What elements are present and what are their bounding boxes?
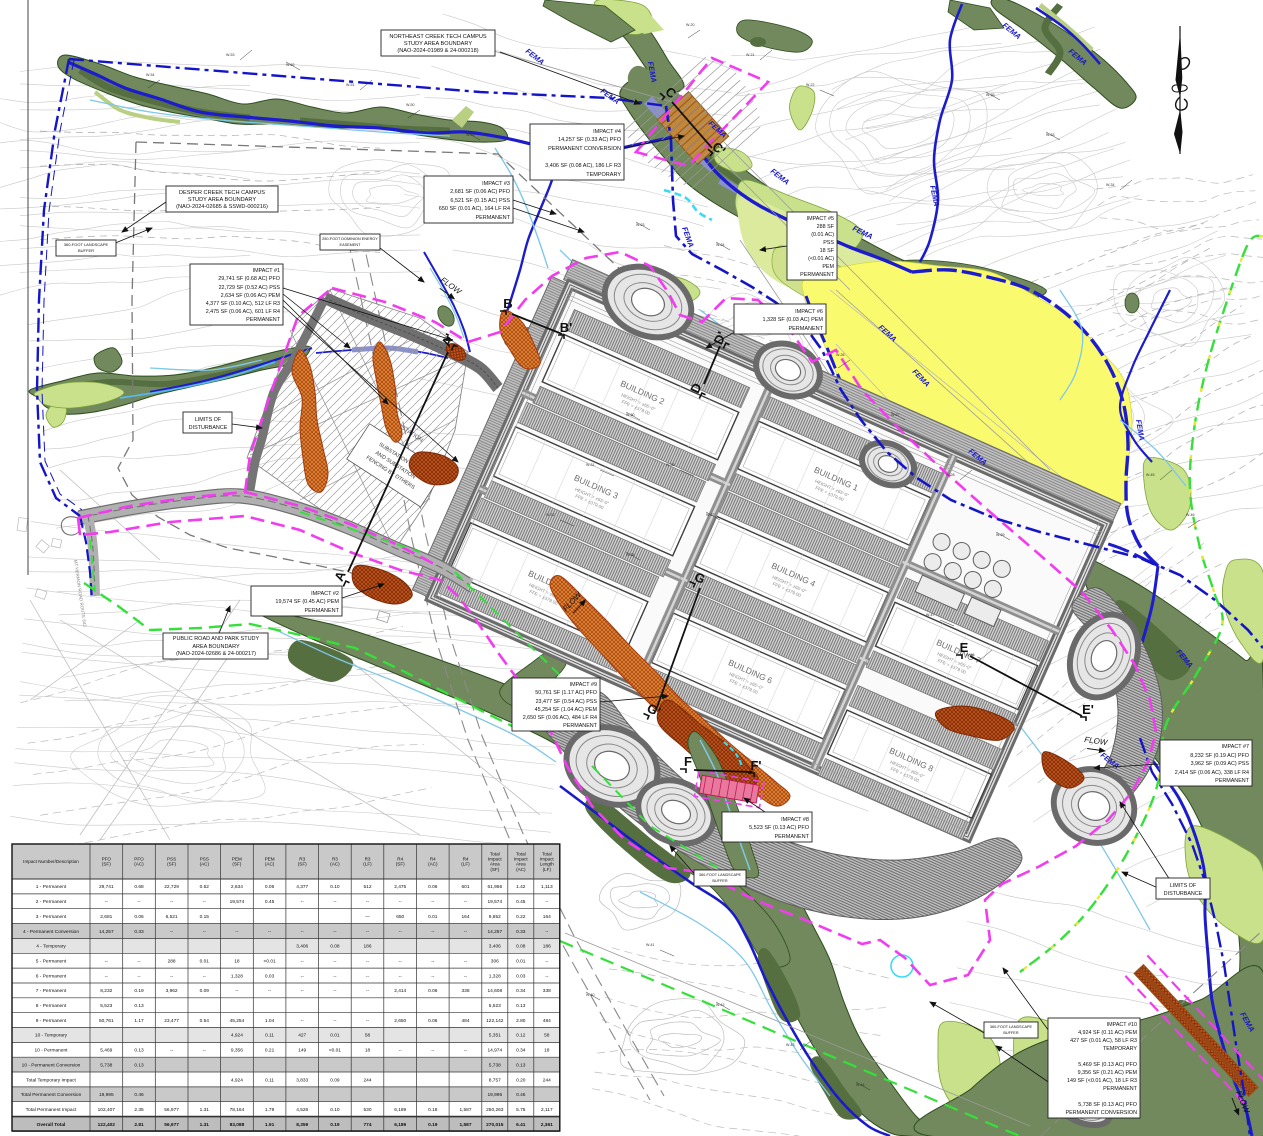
- svg-text:(SF): (SF): [298, 862, 307, 867]
- svg-text:--: --: [545, 960, 549, 965]
- svg-text:PERMANENT: PERMANENT: [800, 272, 835, 278]
- svg-text:5,351: 5,351: [489, 1033, 501, 1039]
- svg-text:--: --: [431, 930, 435, 935]
- svg-text:(NAO-2024-01989 & 24-000218): (NAO-2024-01989 & 24-000218): [397, 48, 478, 54]
- svg-text:1,328: 1,328: [231, 973, 243, 979]
- svg-text:0.33: 0.33: [134, 929, 144, 935]
- svg-text:W-51: W-51: [346, 83, 355, 87]
- svg-text:6.41: 6.41: [516, 1122, 526, 1128]
- svg-text:PERMANENT: PERMANENT: [304, 608, 339, 614]
- svg-text:0.15: 0.15: [200, 914, 210, 920]
- svg-text:186: 186: [363, 944, 371, 950]
- svg-text:--: --: [545, 930, 549, 935]
- svg-text:5,523: 5,523: [489, 1003, 501, 1009]
- svg-text:--: --: [366, 960, 370, 965]
- svg-text:4,924: 4,924: [231, 1033, 243, 1039]
- svg-text:360-FOOT LANDSCAPE: 360-FOOT LANDSCAPE: [990, 1025, 1033, 1029]
- svg-text:F': F': [750, 758, 761, 773]
- svg-text:0.20: 0.20: [516, 1077, 526, 1083]
- svg-text:9,356 SF (0.21 AC) PEM: 9,356 SF (0.21 AC) PEM: [1078, 1070, 1138, 1076]
- svg-text:--: --: [203, 1049, 207, 1054]
- svg-text:--: --: [545, 974, 549, 979]
- svg-text:2,475: 2,475: [394, 884, 406, 890]
- svg-text:W-37: W-37: [706, 513, 715, 517]
- svg-text:2,414 SF (0.06 AC), 338 LF R4: 2,414 SF (0.06 AC), 338 LF R4: [1175, 770, 1249, 776]
- svg-text:B': B': [560, 320, 572, 335]
- svg-text:--: --: [333, 974, 337, 979]
- svg-text:530: 530: [363, 1107, 371, 1113]
- svg-text:5,469 SF (0.13 AC) PFO: 5,469 SF (0.13 AC) PFO: [1078, 1062, 1137, 1068]
- svg-text:(AC): (AC): [134, 862, 144, 867]
- svg-text:PERMANENT: PERMANENT: [563, 723, 598, 729]
- svg-text:--: --: [464, 960, 468, 965]
- svg-text:8,757: 8,757: [489, 1077, 501, 1083]
- svg-text:--: --: [333, 989, 337, 994]
- svg-text:102,407: 102,407: [98, 1107, 116, 1113]
- svg-text:164: 164: [461, 914, 469, 920]
- svg-text:--: --: [431, 900, 435, 905]
- svg-text:PUBLIC ROAD AND PARK STUDY: PUBLIC ROAD AND PARK STUDY: [173, 636, 260, 642]
- svg-text:14,257 SF (0.33 AC) PFO: 14,257 SF (0.33 AC) PFO: [558, 137, 622, 143]
- svg-text:18 SF: 18 SF: [820, 248, 835, 254]
- svg-text:4 - Temporary: 4 - Temporary: [36, 944, 66, 950]
- svg-text:W-49: W-49: [466, 133, 475, 137]
- svg-text:1,587: 1,587: [459, 1107, 471, 1113]
- svg-text:14,974: 14,974: [487, 1048, 502, 1054]
- svg-text:122,402: 122,402: [98, 1122, 116, 1128]
- svg-text:1 - Permanent: 1 - Permanent: [36, 884, 67, 890]
- svg-text:484: 484: [543, 1018, 551, 1024]
- svg-text:2,681 SF (0.06 AC) PFO: 2,681 SF (0.06 AC) PFO: [450, 189, 511, 195]
- svg-text:2,634: 2,634: [231, 884, 243, 890]
- svg-text:0.54: 0.54: [200, 1018, 210, 1024]
- svg-text:--: --: [431, 960, 435, 965]
- svg-text:19,574 SF (0.45 AC) PEM: 19,574 SF (0.45 AC) PEM: [275, 599, 339, 605]
- svg-text:BUFFER: BUFFER: [1003, 1031, 1018, 1035]
- svg-text:2.35: 2.35: [134, 1107, 144, 1113]
- svg-text:(SF): (SF): [396, 862, 405, 867]
- svg-text:0.45: 0.45: [516, 899, 526, 905]
- svg-text:W-43: W-43: [786, 1043, 795, 1047]
- svg-text:W-34: W-34: [1106, 183, 1115, 187]
- svg-text:0.33: 0.33: [516, 929, 526, 935]
- svg-text:--: --: [105, 900, 109, 905]
- svg-text:4,924 SF (0.11 AC) PEM: 4,924 SF (0.11 AC) PEM: [1078, 1030, 1137, 1036]
- svg-text:(0.01 AC): (0.01 AC): [811, 232, 834, 238]
- svg-text:4,924: 4,924: [231, 1077, 243, 1083]
- svg-text:4,377 SF (0.10 AC), 512 LF R3: 4,377 SF (0.10 AC), 512 LF R3: [206, 301, 280, 307]
- svg-text:BUFFER: BUFFER: [712, 879, 727, 883]
- svg-text:0.01: 0.01: [330, 1033, 340, 1039]
- svg-text:650 SF (0.01 AC), 164 LF R4: 650 SF (0.01 AC), 164 LF R4: [439, 206, 510, 212]
- svg-text:45,254 SF (1.04 AC) PEM: 45,254 SF (1.04 AC) PEM: [535, 707, 598, 713]
- svg-text:<0.01: <0.01: [264, 959, 276, 965]
- svg-text:9 - Permanent: 9 - Permanent: [36, 1018, 67, 1024]
- svg-text:8,359: 8,359: [296, 1122, 308, 1128]
- svg-text:IMPACT #3: IMPACT #3: [482, 181, 510, 187]
- svg-text:Total Permanent Conversion: Total Permanent Conversion: [21, 1092, 82, 1098]
- svg-text:2,650: 2,650: [394, 1018, 406, 1024]
- svg-text:(AC): (AC): [428, 862, 438, 867]
- svg-text:3,962 SF (0.09 AC) PSS: 3,962 SF (0.09 AC) PSS: [1191, 761, 1250, 767]
- svg-text:288: 288: [168, 959, 176, 965]
- svg-text:427: 427: [298, 1033, 306, 1039]
- svg-text:5,738: 5,738: [100, 1062, 112, 1068]
- svg-text:NORTHEAST CREEK TECH CAMPUS: NORTHEAST CREEK TECH CAMPUS: [389, 34, 487, 40]
- svg-text:3,962: 3,962: [166, 988, 178, 994]
- svg-text:--: --: [399, 1049, 403, 1054]
- svg-text:288 SF: 288 SF: [817, 224, 835, 230]
- svg-text:W-27: W-27: [891, 413, 900, 417]
- svg-text:DISTURBANCE: DISTURBANCE: [1164, 891, 1203, 897]
- svg-text:--: --: [301, 900, 305, 905]
- svg-text:--: --: [170, 974, 174, 979]
- svg-text:--: --: [333, 1019, 337, 1024]
- svg-text:2,361: 2,361: [541, 1122, 553, 1128]
- svg-text:(AC): (AC): [516, 867, 526, 872]
- svg-text:149 SF (<0.01 AC), 18 LF R3: 149 SF (<0.01 AC), 18 LF R3: [1067, 1078, 1137, 1084]
- svg-text:W-44: W-44: [856, 1083, 865, 1087]
- svg-text:22,729: 22,729: [164, 884, 179, 890]
- svg-text:—: —: [365, 915, 370, 920]
- svg-text:360-FOOT LANDSCAPE: 360-FOOT LANDSCAPE: [64, 242, 109, 247]
- svg-text:(SF): (SF): [102, 862, 111, 867]
- svg-text:601: 601: [461, 884, 469, 890]
- svg-text:IMPACT #6: IMPACT #6: [795, 309, 823, 315]
- svg-text:W-31: W-31: [586, 463, 595, 467]
- svg-text:0.22: 0.22: [516, 914, 526, 920]
- svg-text:0.13: 0.13: [516, 1003, 526, 1009]
- svg-text:0.08: 0.08: [516, 944, 526, 950]
- svg-text:0.06: 0.06: [265, 884, 275, 890]
- svg-text:0.13: 0.13: [134, 1062, 144, 1068]
- svg-text:(AC): (AC): [330, 862, 340, 867]
- svg-text:0.06: 0.06: [428, 884, 438, 890]
- svg-text:0.11: 0.11: [265, 1033, 274, 1039]
- svg-text:W-42: W-42: [716, 1003, 725, 1007]
- svg-text:0.19: 0.19: [330, 1122, 340, 1128]
- svg-text:(LF): (LF): [363, 862, 372, 867]
- svg-text:0.46: 0.46: [134, 1092, 144, 1098]
- svg-text:--: --: [268, 930, 272, 935]
- svg-text:6,189: 6,189: [394, 1122, 406, 1128]
- svg-text:B: B: [503, 296, 512, 311]
- svg-text:TEMPORARY: TEMPORARY: [1103, 1046, 1137, 1052]
- svg-text:PERMANENT CONVERSION: PERMANENT CONVERSION: [1066, 1110, 1138, 1116]
- svg-text:23,477 SF (0.54 AC) PSS: 23,477 SF (0.54 AC) PSS: [536, 699, 598, 705]
- svg-text:186: 186: [543, 944, 551, 950]
- svg-text:5,738 SF (0.13 AC) PFO: 5,738 SF (0.13 AC) PFO: [1078, 1102, 1137, 1108]
- svg-text:1.04: 1.04: [265, 1018, 275, 1024]
- svg-text:3 - Permanent: 3 - Permanent: [36, 914, 67, 920]
- svg-text:Impact Number/Description: Impact Number/Description: [23, 859, 79, 864]
- svg-text:W-36: W-36: [666, 463, 675, 467]
- svg-text:LIMITS OF: LIMITS OF: [1170, 883, 1197, 889]
- svg-text:W-20: W-20: [686, 23, 695, 27]
- svg-text:W-26: W-26: [836, 353, 845, 357]
- svg-text:338: 338: [461, 988, 469, 994]
- svg-text:5.75: 5.75: [516, 1107, 526, 1113]
- svg-text:--: --: [366, 974, 370, 979]
- svg-text:--: --: [268, 989, 272, 994]
- svg-text:2,414: 2,414: [394, 988, 406, 994]
- svg-text:9,356: 9,356: [231, 1048, 243, 1054]
- svg-text:3,833: 3,833: [296, 1077, 308, 1083]
- svg-text:W-29: W-29: [996, 533, 1005, 537]
- svg-text:306: 306: [491, 959, 499, 965]
- svg-text:--: --: [203, 974, 207, 979]
- svg-text:1.42: 1.42: [516, 884, 526, 890]
- svg-text:50,761: 50,761: [99, 1018, 114, 1024]
- svg-text:512: 512: [363, 884, 371, 890]
- svg-text:IMPACT #9: IMPACT #9: [570, 682, 597, 688]
- svg-text:4,377: 4,377: [296, 884, 308, 890]
- svg-text:LIMITS OF: LIMITS OF: [195, 417, 222, 423]
- svg-text:--: --: [545, 900, 549, 905]
- svg-text:6,521 SF (0.15 AC) PSS: 6,521 SF (0.15 AC) PSS: [450, 198, 510, 204]
- svg-text:1.31: 1.31: [200, 1122, 210, 1128]
- svg-text:--: --: [203, 900, 207, 905]
- svg-text:--: --: [105, 960, 109, 965]
- svg-text:PERMANENT: PERMANENT: [246, 317, 281, 323]
- svg-text:TEMPORARY: TEMPORARY: [586, 172, 621, 178]
- svg-text:3,406: 3,406: [489, 944, 501, 950]
- svg-text:W-21: W-21: [746, 53, 755, 57]
- svg-text:5,469: 5,469: [100, 1048, 112, 1054]
- svg-text:8 - Permanent: 8 - Permanent: [36, 1003, 67, 1009]
- svg-text:(NAO-2024-02686 & 24-000217): (NAO-2024-02686 & 24-000217): [176, 651, 256, 657]
- svg-text:0.09: 0.09: [200, 988, 210, 994]
- svg-text:PERMANENT: PERMANENT: [1215, 778, 1250, 784]
- svg-text:0.09: 0.09: [330, 1077, 340, 1083]
- svg-text:W-53: W-53: [226, 53, 235, 57]
- svg-text:W-48: W-48: [966, 653, 975, 657]
- svg-text:IMPACT #7: IMPACT #7: [1222, 744, 1249, 750]
- svg-text:W-32: W-32: [546, 513, 555, 517]
- svg-text:3,406: 3,406: [296, 944, 308, 950]
- svg-text:IMPACT #2: IMPACT #2: [311, 591, 339, 597]
- svg-text:164: 164: [543, 914, 551, 920]
- svg-text:8,232: 8,232: [100, 988, 112, 994]
- svg-text:--: --: [137, 974, 141, 979]
- svg-text:18: 18: [544, 1048, 550, 1054]
- svg-text:2,634 SF (0.06 AC) PEM: 2,634 SF (0.06 AC) PEM: [221, 293, 281, 299]
- svg-text:122,142: 122,142: [486, 1018, 504, 1024]
- svg-text:0.68: 0.68: [134, 884, 144, 890]
- svg-text:--: --: [399, 930, 403, 935]
- svg-text:Total Permanent Impact: Total Permanent Impact: [26, 1107, 77, 1113]
- svg-text:149: 149: [298, 1048, 306, 1054]
- svg-text:(SF): (SF): [167, 862, 176, 867]
- svg-text:PERMANENT: PERMANENT: [774, 834, 809, 840]
- svg-text:IMPACT #8: IMPACT #8: [781, 817, 809, 823]
- svg-text:E': E': [1082, 702, 1094, 717]
- svg-text:--: --: [399, 960, 403, 965]
- svg-text:--: --: [301, 974, 305, 979]
- svg-text:2,681: 2,681: [100, 914, 112, 920]
- svg-text:--: --: [203, 930, 207, 935]
- svg-text:--: --: [170, 930, 174, 935]
- svg-text:0.10: 0.10: [330, 1107, 340, 1113]
- svg-text:6 - Permanent: 6 - Permanent: [36, 973, 67, 979]
- svg-text:(AC): (AC): [200, 862, 210, 867]
- svg-text:0.13: 0.13: [134, 1048, 144, 1054]
- svg-text:W-24: W-24: [716, 243, 725, 247]
- svg-text:0.19: 0.19: [428, 1122, 438, 1128]
- svg-text:PERMANENT: PERMANENT: [1103, 1086, 1138, 1092]
- svg-text:--: --: [366, 1019, 370, 1024]
- svg-text:4 - Permanent Conversion: 4 - Permanent Conversion: [23, 929, 79, 935]
- svg-text:250,263: 250,263: [486, 1107, 504, 1113]
- svg-text:10 - Temporary: 10 - Temporary: [35, 1033, 68, 1039]
- svg-text:14,257: 14,257: [487, 929, 502, 935]
- svg-text:EASEMENT: EASEMENT: [340, 243, 362, 247]
- svg-text:9,852: 9,852: [489, 914, 501, 920]
- svg-text:14,257: 14,257: [99, 929, 114, 935]
- svg-text:--: --: [366, 900, 370, 905]
- svg-text:2,650 SF (0.06 AC), 484 LF R4: 2,650 SF (0.06 AC), 484 LF R4: [523, 715, 597, 721]
- svg-text:4,526: 4,526: [296, 1107, 308, 1113]
- svg-text:10 - Permanent: 10 - Permanent: [34, 1048, 68, 1054]
- svg-text:0.12: 0.12: [516, 1033, 526, 1039]
- svg-text:STUDY AREA BOUNDARY: STUDY AREA BOUNDARY: [404, 41, 472, 47]
- svg-text:0.03: 0.03: [516, 973, 526, 979]
- svg-text:IMPACT #1: IMPACT #1: [253, 268, 280, 274]
- svg-text:IMPACT #10: IMPACT #10: [1107, 1022, 1137, 1028]
- svg-text:250-FOOT DOMINION ENERGY: 250-FOOT DOMINION ENERGY: [322, 237, 378, 241]
- svg-text:244: 244: [543, 1077, 551, 1083]
- svg-text:(SF): (SF): [490, 867, 499, 872]
- svg-text:5 - Permanent: 5 - Permanent: [36, 959, 67, 965]
- svg-text:--: --: [431, 974, 435, 979]
- svg-text:W-30: W-30: [626, 413, 635, 417]
- svg-text:W-50: W-50: [406, 103, 415, 107]
- svg-text:5,523: 5,523: [100, 1003, 112, 1009]
- svg-text:F: F: [684, 754, 692, 769]
- svg-text:--: --: [399, 974, 403, 979]
- svg-text:--: --: [464, 930, 468, 935]
- svg-text:0.03: 0.03: [265, 973, 275, 979]
- svg-text:PERMANENT: PERMANENT: [475, 215, 510, 221]
- svg-text:--: --: [464, 974, 468, 979]
- svg-text:7 - Permanent: 7 - Permanent: [36, 988, 67, 994]
- svg-text:--: --: [301, 930, 305, 935]
- svg-text:AREA BOUNDARY: AREA BOUNDARY: [192, 644, 240, 650]
- svg-text:0.34: 0.34: [516, 988, 526, 994]
- svg-text:1,328: 1,328: [489, 973, 501, 979]
- svg-text:0.01: 0.01: [200, 959, 210, 965]
- svg-text:STUDY AREA BOUNDARY: STUDY AREA BOUNDARY: [188, 197, 256, 203]
- svg-text:6,521: 6,521: [166, 914, 178, 920]
- svg-text:18: 18: [365, 1048, 371, 1054]
- svg-text:774: 774: [363, 1122, 371, 1128]
- svg-text:--: --: [137, 900, 141, 905]
- svg-text:PERMANENT: PERMANENT: [788, 326, 823, 332]
- svg-text:14,608: 14,608: [487, 988, 502, 994]
- svg-text:1,113: 1,113: [541, 884, 553, 890]
- svg-text:1,328 SF (0.03 AC) PEM: 1,328 SF (0.03 AC) PEM: [762, 317, 823, 323]
- svg-text:650: 650: [396, 914, 404, 920]
- svg-text:19,574: 19,574: [487, 899, 502, 905]
- svg-text:W-33: W-33: [1046, 133, 1055, 137]
- svg-text:--: --: [333, 960, 337, 965]
- svg-text:(LF): (LF): [543, 867, 552, 872]
- svg-text:19,574: 19,574: [230, 899, 245, 905]
- svg-text:29,741 SF (0.68 AC) PFO: 29,741 SF (0.68 AC) PFO: [218, 276, 280, 282]
- svg-text:DESPER CREEK TECH CAMPUS: DESPER CREEK TECH CAMPUS: [179, 190, 265, 196]
- svg-text:58: 58: [365, 1033, 371, 1039]
- svg-text:29,741: 29,741: [99, 884, 114, 890]
- svg-text:18: 18: [234, 959, 240, 965]
- svg-text:(AC): (AC): [265, 862, 275, 867]
- svg-text:0.01: 0.01: [428, 914, 438, 920]
- svg-text:W-23: W-23: [636, 223, 645, 227]
- svg-text:IMPACT #5: IMPACT #5: [807, 216, 834, 222]
- svg-text:2.80: 2.80: [516, 1018, 526, 1024]
- svg-text:360-FOOT LANDSCAPE: 360-FOOT LANDSCAPE: [699, 873, 742, 877]
- svg-text:0.34: 0.34: [516, 1048, 526, 1054]
- svg-text:2 - Permanent: 2 - Permanent: [36, 899, 67, 905]
- svg-text:--: --: [301, 989, 305, 994]
- svg-text:3,406 SF (0.08 AC), 186 LF R3: 3,406 SF (0.08 AC), 186 LF R3: [545, 163, 621, 169]
- svg-text:W-28: W-28: [946, 473, 955, 477]
- svg-text:0.46: 0.46: [516, 1092, 526, 1098]
- svg-text:0.01: 0.01: [516, 959, 526, 965]
- svg-text:--: --: [333, 900, 337, 905]
- svg-text:78,164: 78,164: [230, 1107, 245, 1113]
- svg-text:W-47: W-47: [926, 613, 935, 617]
- svg-text:8,232 SF (0.19 AC) PFO: 8,232 SF (0.19 AC) PFO: [1190, 753, 1249, 759]
- svg-text:5,738: 5,738: [489, 1062, 501, 1068]
- svg-text:--: --: [170, 900, 174, 905]
- svg-text:W-52: W-52: [286, 63, 295, 67]
- svg-text:2.81: 2.81: [134, 1122, 144, 1128]
- svg-text:0.11: 0.11: [265, 1077, 274, 1083]
- svg-text:--: --: [431, 1049, 435, 1054]
- svg-text:0.06: 0.06: [428, 988, 438, 994]
- svg-text:W-46: W-46: [1186, 513, 1195, 517]
- svg-text:PEM: PEM: [822, 264, 834, 270]
- svg-text:0.06: 0.06: [134, 914, 144, 920]
- svg-text:--: --: [301, 960, 305, 965]
- svg-text:1,587: 1,587: [459, 1122, 471, 1128]
- svg-text:--: --: [301, 1019, 305, 1024]
- svg-text:10 - Permanent Conversion: 10 - Permanent Conversion: [22, 1062, 81, 1068]
- svg-text:0.19: 0.19: [134, 988, 144, 994]
- svg-text:19,995: 19,995: [487, 1092, 502, 1098]
- svg-text:427 SF (0.01 AC), 58 LF R3: 427 SF (0.01 AC), 58 LF R3: [1070, 1038, 1137, 1044]
- svg-text:0.10: 0.10: [330, 884, 340, 890]
- svg-text:(SF): (SF): [232, 862, 241, 867]
- svg-text:--: --: [366, 989, 370, 994]
- svg-text:Overall Total: Overall Total: [37, 1122, 66, 1128]
- svg-text:0.13: 0.13: [134, 1003, 144, 1009]
- svg-text:0.52: 0.52: [200, 884, 210, 890]
- svg-text:(LF): (LF): [461, 862, 470, 867]
- svg-text:--: --: [170, 1049, 174, 1054]
- svg-text:23,477: 23,477: [164, 1018, 179, 1024]
- svg-text:0.13: 0.13: [516, 1062, 526, 1068]
- svg-text:56,977: 56,977: [164, 1107, 179, 1113]
- svg-text:--: --: [235, 989, 239, 994]
- svg-text:61,956: 61,956: [487, 884, 502, 890]
- svg-text:56,977: 56,977: [164, 1122, 179, 1128]
- svg-text:83,088: 83,088: [230, 1122, 245, 1128]
- svg-text:1.79: 1.79: [265, 1107, 275, 1113]
- svg-text:45,254: 45,254: [230, 1018, 245, 1024]
- svg-text:--: --: [235, 930, 239, 935]
- svg-text:W-40: W-40: [586, 993, 595, 997]
